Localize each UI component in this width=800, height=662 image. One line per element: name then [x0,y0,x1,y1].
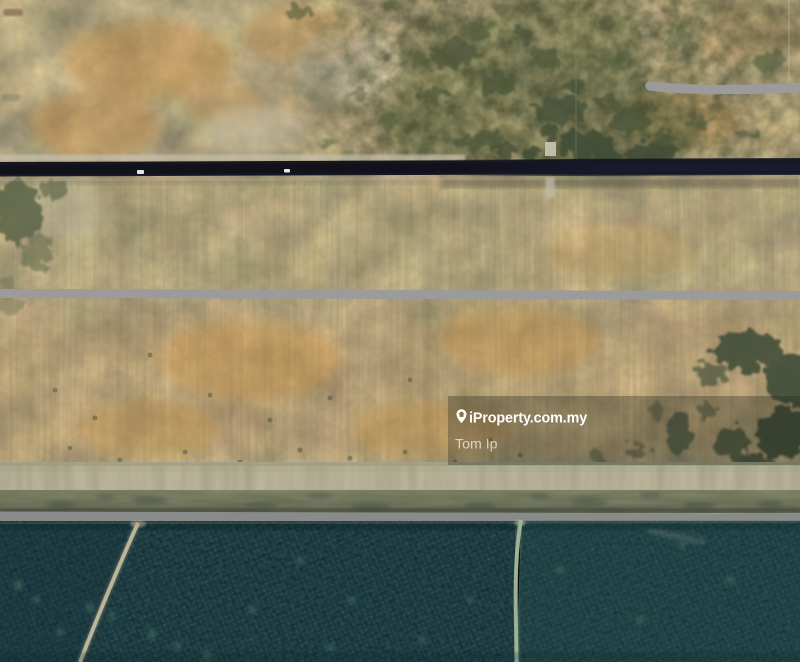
svg-text:Tom Ip: Tom Ip [455,437,498,453]
svg-text:iProperty.com.my: iProperty.com.my [469,411,587,427]
